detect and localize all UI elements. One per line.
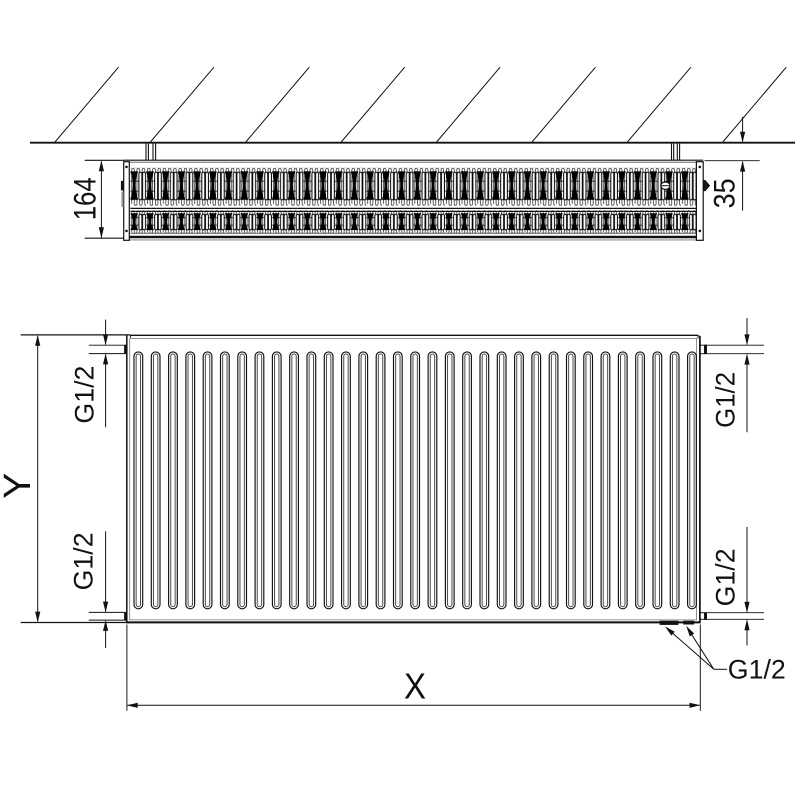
svg-text:G1/2: G1/2 xyxy=(711,548,741,606)
svg-text:G1/2: G1/2 xyxy=(728,654,786,684)
svg-text:G1/2: G1/2 xyxy=(69,366,99,424)
svg-text:X: X xyxy=(404,666,426,707)
svg-text:Y: Y xyxy=(0,473,39,499)
svg-text:G1/2: G1/2 xyxy=(68,532,98,590)
svg-text:164: 164 xyxy=(66,177,102,220)
svg-text:35: 35 xyxy=(709,178,742,208)
svg-text:G1/2: G1/2 xyxy=(711,372,741,428)
